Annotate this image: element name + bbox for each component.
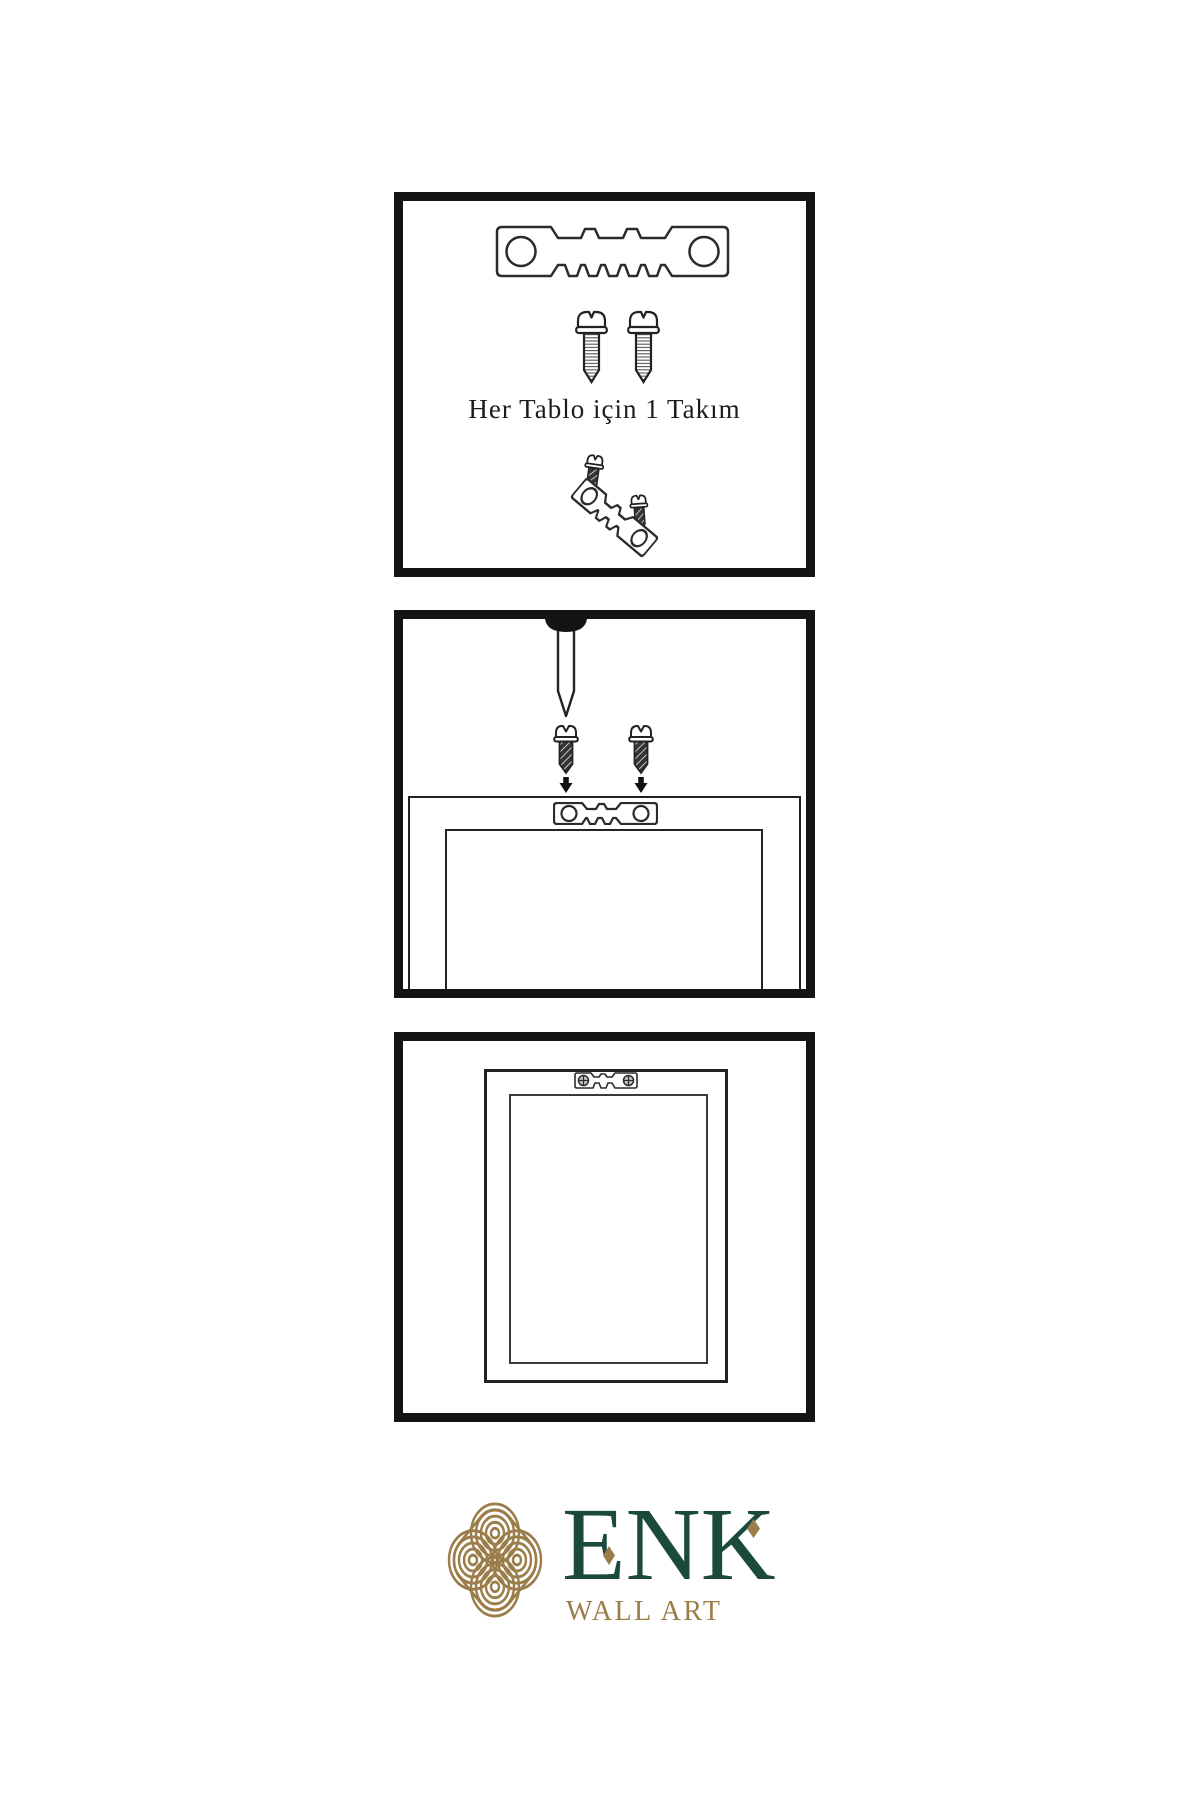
step-1-panel: Her Tablo için 1 Takım [394, 192, 815, 577]
mounted-sawtooth-hanger-icon [553, 802, 658, 825]
frame-inner-outline [445, 829, 763, 998]
screw-icon [575, 308, 608, 384]
step-2-panel [394, 610, 815, 998]
screw-down-arrow-icon [553, 723, 579, 793]
screw-icon [627, 308, 660, 384]
brand-name: ENK [562, 1493, 776, 1597]
hung-frame-inner-outline [509, 1094, 708, 1364]
step-3-panel [394, 1032, 815, 1422]
knot-logo-icon [440, 1493, 550, 1627]
sawtooth-hanger-icon [495, 225, 730, 278]
instruction-sheet: Her Tablo için 1 Takım ENK WALL ART [0, 0, 1200, 1800]
brand-subtitle: WALL ART [566, 1598, 723, 1626]
kit-caption: Her Tablo için 1 Takım [403, 394, 806, 425]
wall-nail-icon [544, 619, 588, 719]
screwed-sawtooth-hanger-icon [574, 1072, 638, 1089]
hung-frame-outline [484, 1069, 728, 1383]
screw-down-arrow-icon [628, 723, 654, 793]
